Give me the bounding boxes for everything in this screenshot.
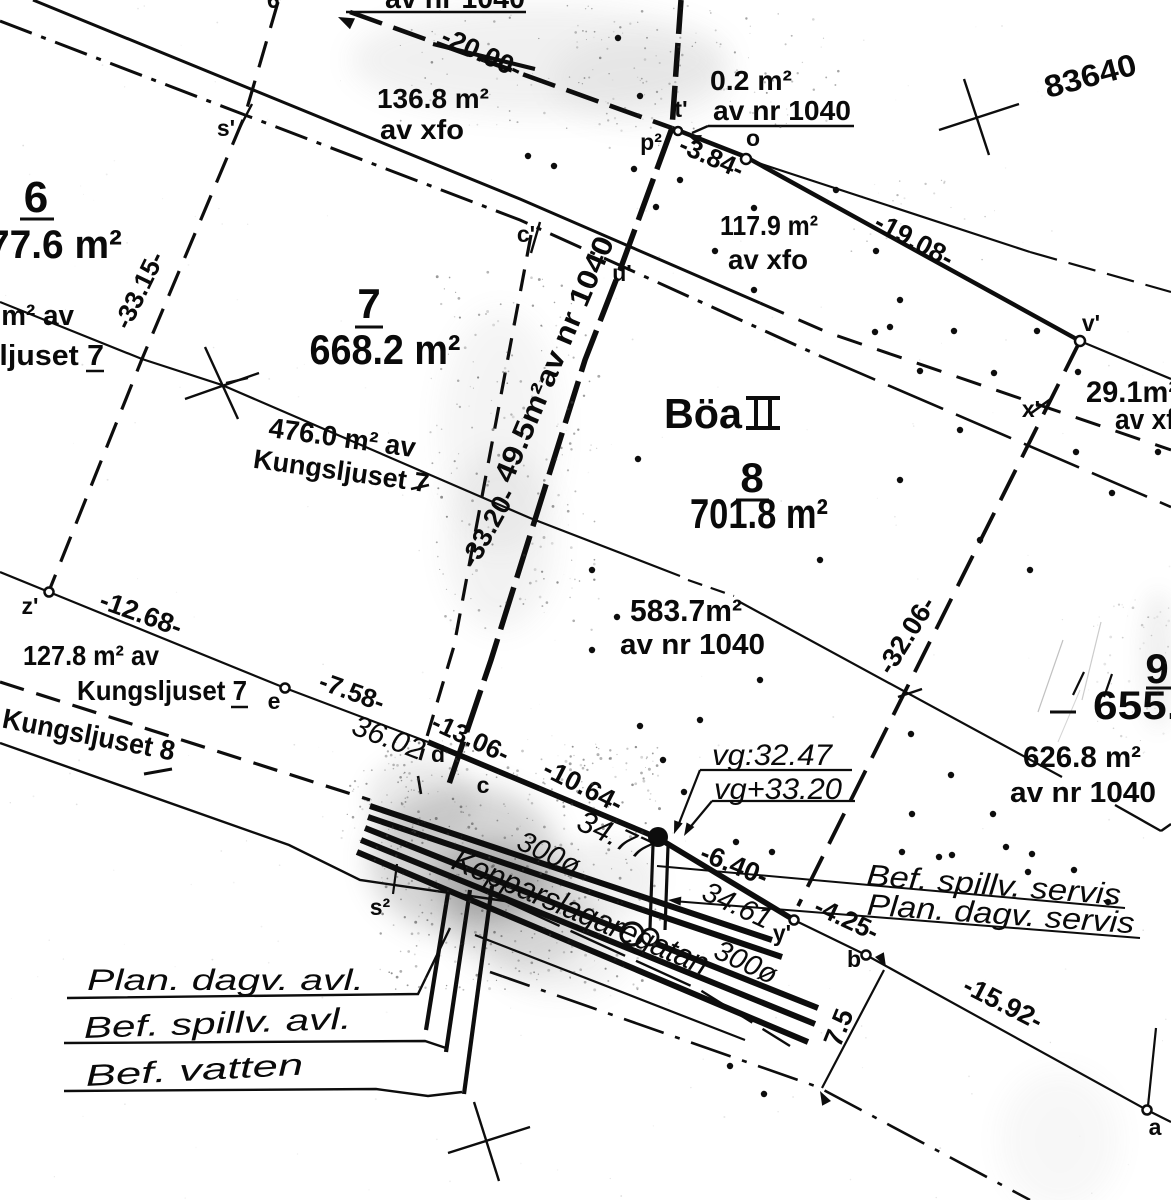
svg-text:117.9 m²: 117.9 m² [720, 210, 818, 241]
svg-text:7: 7 [357, 280, 380, 327]
svg-text:583.7m²: 583.7m² [630, 593, 742, 628]
svg-text:vg+33.20: vg+33.20 [714, 773, 842, 806]
svg-text:t': t' [674, 96, 687, 122]
svg-text:av nr 1040: av nr 1040 [713, 95, 851, 126]
svg-text:e: e [268, 688, 281, 714]
svg-text:d: d [431, 741, 445, 767]
svg-text:av nr 1040: av nr 1040 [1010, 777, 1156, 809]
svg-text:Böa: Böa [664, 390, 743, 437]
svg-text:77.6 m²: 77.6 m² [0, 223, 122, 267]
svg-text:626.8 m²: 626.8 m² [1023, 741, 1141, 774]
svg-text:p²: p² [640, 129, 662, 155]
svg-text:z': z' [22, 593, 39, 619]
svg-text:c': c' [517, 221, 535, 247]
svg-text:av xfo: av xfo [728, 244, 808, 275]
svg-text:av nr 1040: av nr 1040 [620, 629, 765, 661]
svg-text:6': 6' [267, 0, 285, 13]
svg-text:b: b [847, 946, 861, 972]
svg-text:u': u' [612, 260, 632, 286]
svg-text:av nr 1040: av nr 1040 [385, 0, 525, 15]
svg-text:5 m² av: 5 m² av [0, 300, 74, 332]
svg-text:655.: 655. [1093, 684, 1171, 728]
svg-text:668.2 m²: 668.2 m² [310, 326, 461, 373]
svg-text:x': x' [1022, 396, 1040, 422]
svg-text:6: 6 [24, 173, 48, 222]
svg-text:Plan. dagv. avl.: Plan. dagv. avl. [87, 964, 364, 997]
svg-text:701.8 m²: 701.8 m² [690, 490, 828, 537]
svg-text:136.8 m²: 136.8 m² [377, 83, 489, 114]
svg-text:a: a [1149, 1114, 1162, 1140]
svg-text:s': s' [217, 115, 235, 141]
svg-text:o: o [746, 125, 760, 151]
svg-text:av xf: av xf [1115, 404, 1171, 436]
svg-text:Kungsljuset 7: Kungsljuset 7 [77, 675, 247, 706]
svg-text:gsljuset 7: gsljuset 7 [0, 340, 104, 372]
svg-text:127.8 m² av: 127.8 m² av [23, 640, 159, 671]
svg-text:c: c [477, 772, 490, 798]
svg-text:0.2 m²: 0.2 m² [710, 65, 792, 96]
svg-text:v': v' [1082, 310, 1100, 336]
svg-text:y': y' [773, 920, 791, 946]
svg-text:s²: s² [370, 894, 391, 920]
svg-text:vg:32.47: vg:32.47 [712, 739, 833, 772]
svg-text:av xfo: av xfo [380, 114, 464, 145]
